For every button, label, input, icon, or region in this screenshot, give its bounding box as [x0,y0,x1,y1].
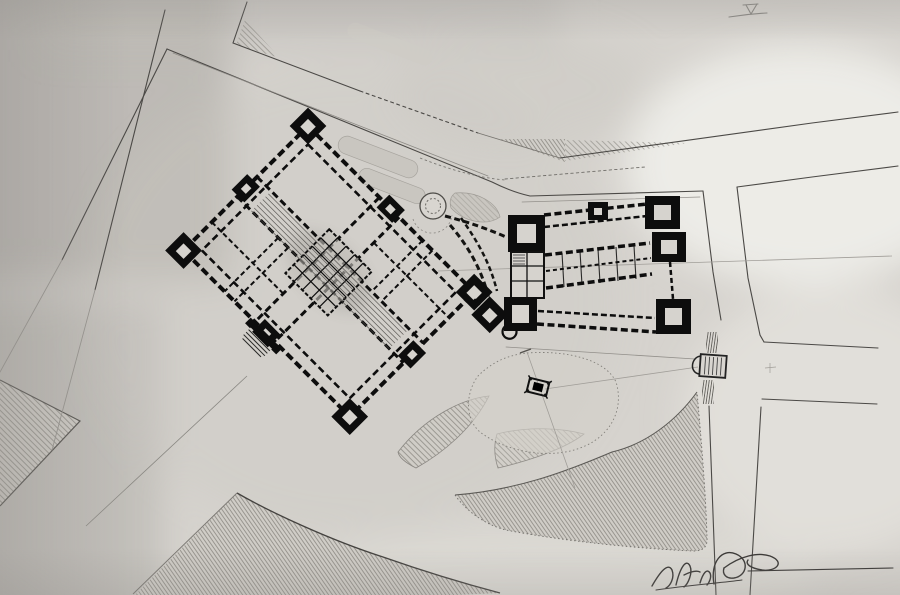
southeast-pavilion [656,299,691,334]
photographed-plan [0,0,900,595]
site-plan-svg [0,0,900,595]
top-wing-mid-pavilion [588,202,608,220]
east-middle-block [652,232,686,262]
southwest-pavilion [504,297,537,331]
west-entrance-block [508,215,545,298]
round-basin [420,193,446,219]
northeast-pavilion [645,196,680,229]
garden-teardrop-lawn [469,352,619,453]
